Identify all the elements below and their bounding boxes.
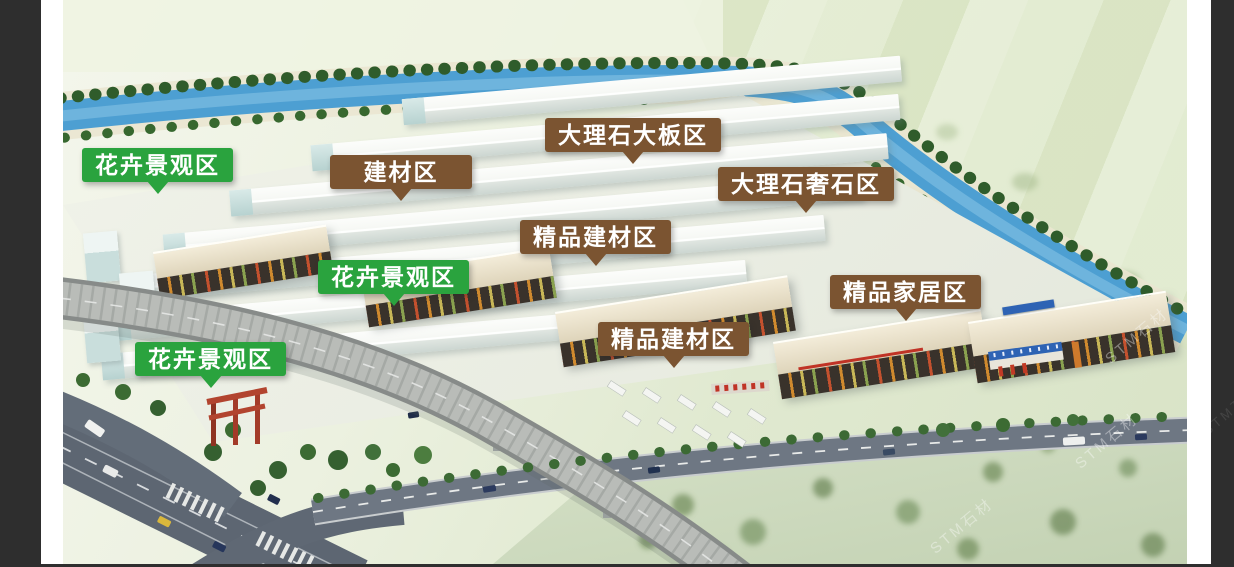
zone-label-text: 建材区 [364, 159, 439, 185]
viewer-background: 花卉景观区建材区大理石大板区大理石奢石区精品建材区花卉景观区精品家居区精品建材区… [0, 0, 1234, 567]
zone-label-text: 花卉景观区 [331, 264, 456, 290]
zone-label: 大理石奢石区 [718, 167, 894, 201]
zone-label-text: 精品家居区 [843, 279, 968, 305]
zone-label: 精品建材区 [598, 322, 749, 356]
zone-label-text: 花卉景观区 [95, 152, 220, 178]
zone-label: 精品家居区 [830, 275, 981, 309]
zone-label: 建材区 [330, 155, 472, 189]
zone-label: 精品建材区 [520, 220, 671, 254]
zone-label-text: 大理石奢石区 [731, 171, 881, 197]
zone-label: 花卉景观区 [82, 148, 233, 182]
zone-label: 花卉景观区 [135, 342, 286, 376]
zone-label: 花卉景观区 [318, 260, 469, 294]
zone-label-text: 精品建材区 [611, 326, 736, 352]
zone-labels: 花卉景观区建材区大理石大板区大理石奢石区精品建材区花卉景观区精品家居区精品建材区… [63, 0, 1187, 564]
zone-label-text: 花卉景观区 [148, 346, 273, 372]
zone-label-text: 精品建材区 [533, 224, 658, 250]
aerial-rendering: 花卉景观区建材区大理石大板区大理石奢石区精品建材区花卉景观区精品家居区精品建材区… [63, 0, 1187, 564]
zone-label: 大理石大板区 [545, 118, 721, 152]
zone-label-text: 大理石大板区 [558, 122, 708, 148]
